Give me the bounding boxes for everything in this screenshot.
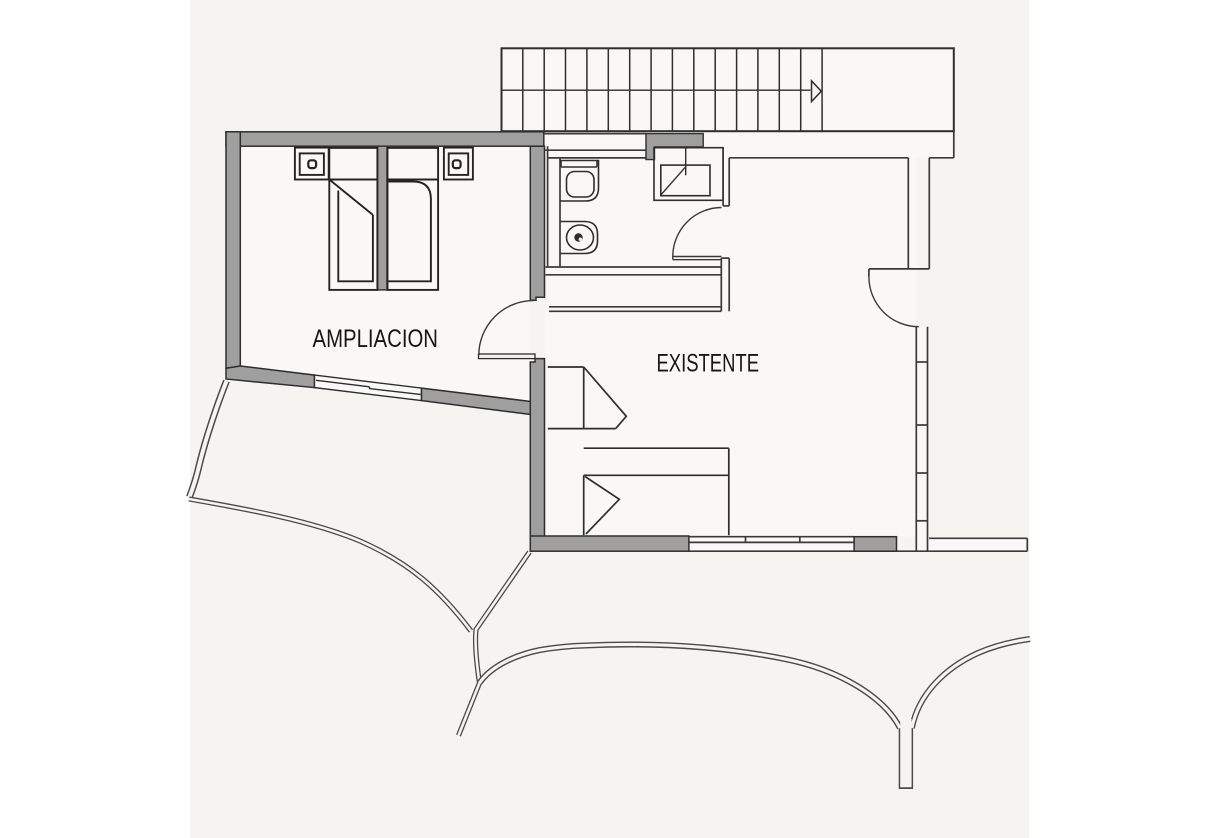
svg-text:EXISTENTE: EXISTENTE <box>657 350 760 378</box>
svg-text:AMPLIACION: AMPLIACION <box>313 325 439 353</box>
